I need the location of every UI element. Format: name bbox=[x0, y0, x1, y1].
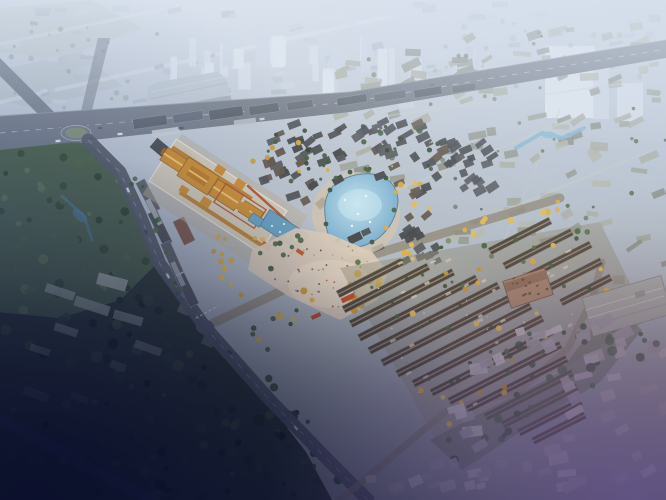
aerial-masterplan-rendering bbox=[0, 0, 666, 500]
vignette-overlay bbox=[0, 0, 666, 500]
rendering-canvas bbox=[0, 0, 666, 500]
